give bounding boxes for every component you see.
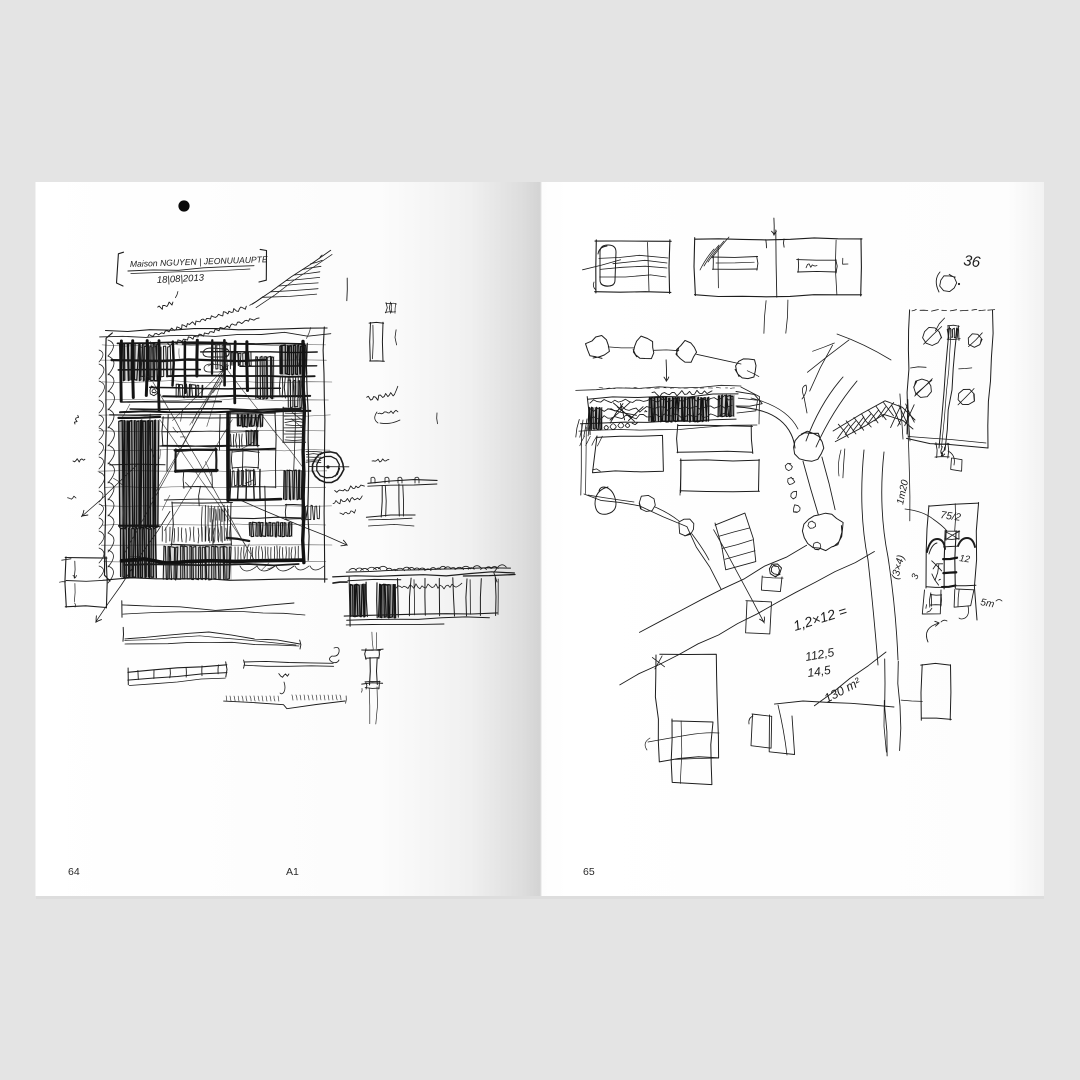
svg-text:36: 36 xyxy=(962,252,982,271)
svg-text:64: 64 xyxy=(68,866,80,878)
svg-text:65: 65 xyxy=(583,866,595,878)
svg-text:A1: A1 xyxy=(286,866,299,878)
